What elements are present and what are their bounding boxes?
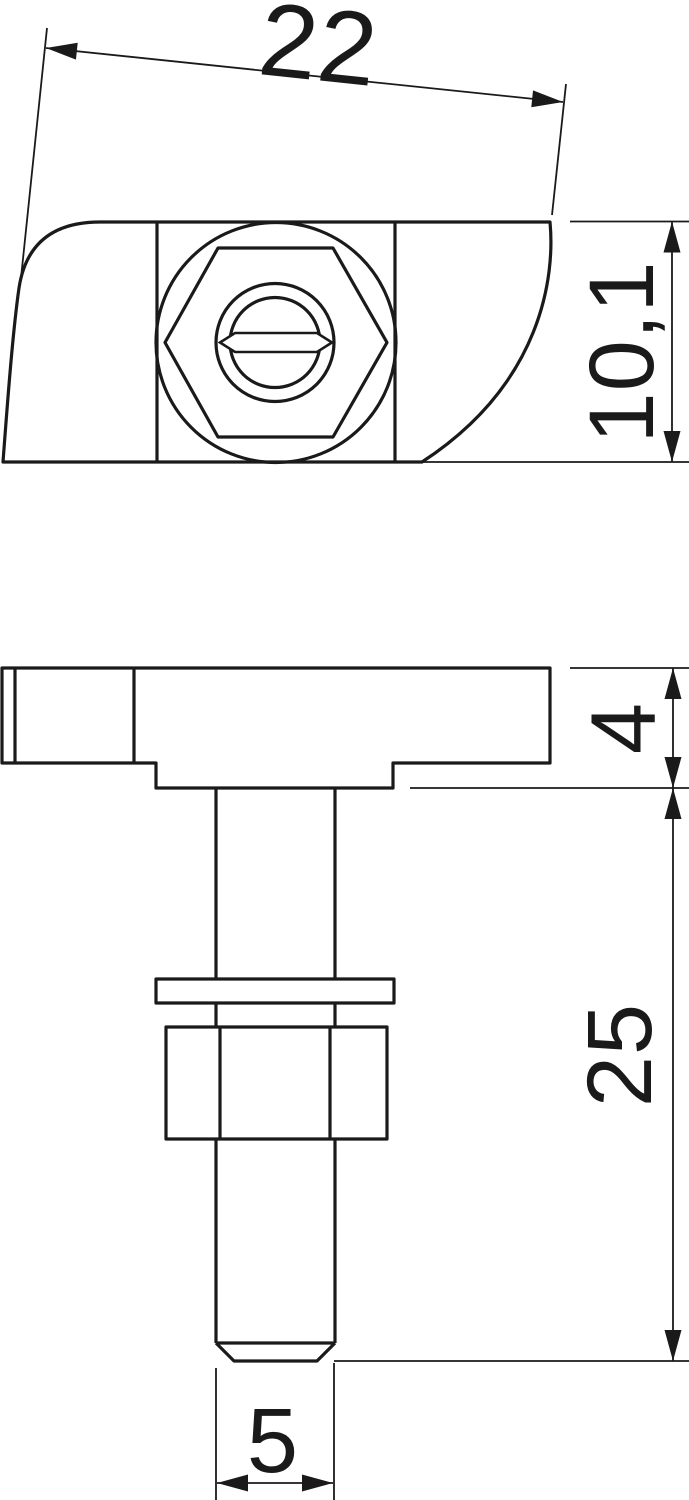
shaft-lower [216, 1139, 335, 1343]
side-view [2, 668, 550, 1361]
shaft-upper [216, 788, 335, 979]
hex-nut [166, 1027, 387, 1139]
dimension-label-plate-width: 22 [254, 0, 383, 109]
hammer-head-bolt-drawing: 22 10,1 [0, 0, 689, 1500]
screw-slot [220, 333, 332, 352]
dimension-label-head-thickness: 4 [573, 702, 675, 754]
dimension-arrow [531, 90, 564, 110]
dimension-arrow [665, 668, 682, 699]
dimension-arrow [665, 757, 682, 788]
shaft-tip-chamfer [216, 1343, 335, 1361]
washer [156, 979, 394, 1003]
dimension-plate-width: 22 [21, 0, 566, 278]
technical-drawing-sheet: 22 10,1 [0, 0, 689, 1500]
head-plate-edge-lines [15, 668, 134, 763]
dimension-arrow [665, 1330, 682, 1361]
dimension-arrow [665, 788, 682, 819]
dimension-tip-diameter: 5 [216, 1363, 334, 1500]
dimension-arrow [302, 1475, 333, 1492]
dimension-label-shaft-length: 25 [569, 1003, 671, 1107]
dimension-arrow [45, 40, 78, 60]
hex-nut-flats [220, 1027, 330, 1139]
shaft-mid [216, 1003, 335, 1027]
dimension-plate-depth: 10,1 [422, 222, 689, 463]
dimension-label-plate-depth: 10,1 [571, 260, 673, 443]
top-view [3, 222, 551, 463]
dimension-arrow [664, 222, 681, 253]
dimension-arrow [217, 1475, 248, 1492]
head-plate-outline [2, 668, 550, 788]
extension-line-right [552, 84, 566, 215]
dimension-label-tip-diameter: 5 [247, 1390, 299, 1492]
